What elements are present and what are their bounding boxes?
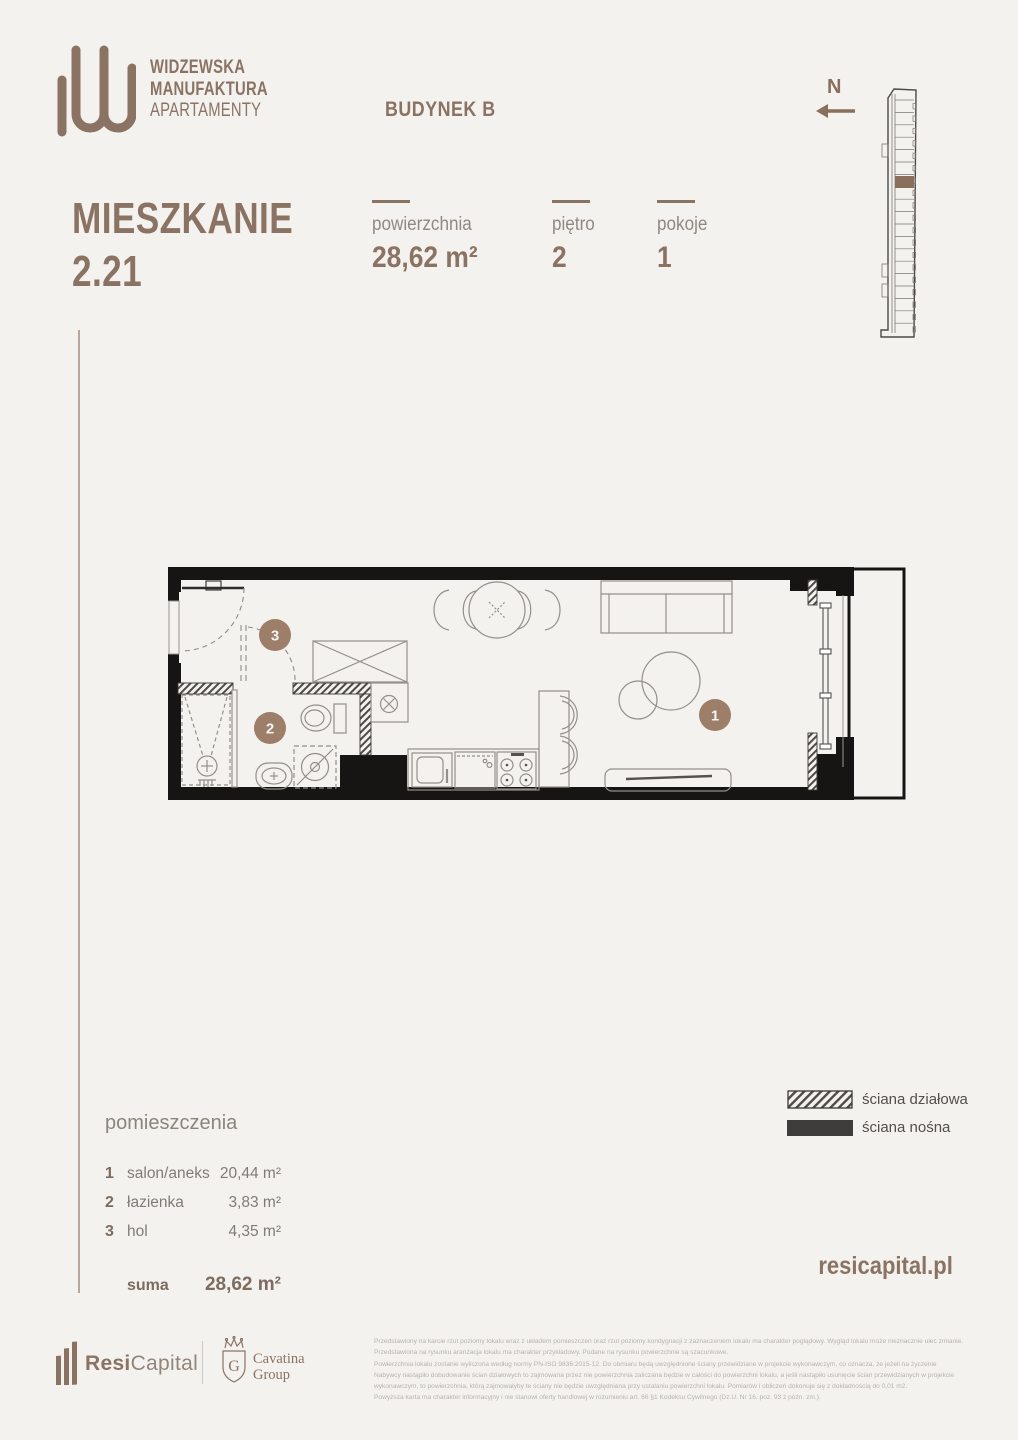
- room-row: 1 salon/aneks 20,44 m²: [105, 1165, 281, 1183]
- disclaimer-line: Przedstawiona na rysunku aranżacja lokal…: [374, 1347, 990, 1358]
- dining-set: [434, 582, 560, 638]
- logo-line-1: WIDZEWSKA: [150, 57, 268, 79]
- stat-rooms-value: 1: [657, 241, 672, 275]
- stat-floor-value: 2: [552, 241, 567, 275]
- marker-2-label: 2: [266, 721, 274, 738]
- entry-door-opening: [169, 601, 179, 654]
- apartment-card: { "page": { "background": "#f4f2ef", "ac…: [0, 0, 1018, 1440]
- washbasin: [256, 763, 292, 789]
- website-link[interactable]: resicapital.pl: [818, 1252, 953, 1281]
- room-area: 3,83 m²: [228, 1194, 281, 1212]
- room-area: 4,35 m²: [228, 1223, 281, 1241]
- legend-label-bearing-wall: ściana nośna: [862, 1119, 950, 1136]
- keyplan-highlighted-unit: [895, 176, 914, 188]
- compass: N: [814, 76, 858, 128]
- disclaimer-line: Powierzchnia lokalu zostanie wyliczona w…: [374, 1359, 990, 1370]
- resicapital-logo-text: ResiCapital: [85, 1352, 198, 1376]
- round-table-small: [619, 681, 657, 719]
- brand-logo-text: WIDZEWSKA MANUFAKTURA APARTAMENTY: [150, 57, 301, 122]
- stat-rooms: pokoje 1: [657, 200, 807, 275]
- room-name: łazienka: [127, 1194, 228, 1212]
- window: [820, 603, 831, 749]
- cavatina-monogram: G: [228, 1358, 240, 1375]
- logo-line-3: APARTAMENTY: [150, 100, 268, 122]
- floorplan-drawing: 1 2 3: [168, 563, 908, 803]
- stat-floor-label: piętro: [552, 214, 595, 236]
- legend-swatch-bearing-wall: [787, 1120, 853, 1136]
- room-row: 2 łazienka 3,83 m²: [105, 1194, 281, 1212]
- marker-1-label: 1: [711, 708, 719, 725]
- compass-n-label: N: [814, 76, 858, 99]
- marker-3-label: 3: [271, 628, 279, 645]
- title-line-1: MIESZKANIE: [72, 192, 293, 245]
- vent-box: [371, 683, 408, 722]
- cavatina-logo-text: Cavatina Group: [253, 1351, 305, 1383]
- disclaimer-line: wykonawczym, to powierzchnia, którą zajm…: [374, 1381, 990, 1392]
- entry-door: [181, 581, 244, 651]
- rooms-total-row: suma 28,62 m²: [105, 1274, 281, 1296]
- building-label: BUDYNEK B: [385, 98, 515, 122]
- legend-label-partition-wall: ściana działowa: [862, 1091, 968, 1108]
- stat-rooms-label: pokoje: [657, 214, 707, 236]
- stat-rule: [372, 200, 410, 203]
- legend-swatch-partition-wall: [787, 1090, 853, 1109]
- disclaimer-line: Powyższa karta ma charakter informacyjny…: [374, 1392, 990, 1403]
- footer-divider: [202, 1341, 203, 1384]
- disclaimer-line: Nabywcy nastąpiło dobudowanie ścian dzia…: [374, 1370, 990, 1381]
- page-title: MIESZKANIE 2.21: [72, 192, 348, 298]
- dishwasher: [455, 752, 495, 788]
- building-keyplan: [872, 86, 924, 342]
- furniture: [182, 581, 732, 791]
- total-label: suma: [127, 1277, 205, 1295]
- resicapital-logo-icon: [56, 1340, 82, 1385]
- brand-bold: Resi: [85, 1352, 131, 1375]
- stat-area: powierzchnia 28,62 m²: [372, 200, 522, 275]
- room-row: 3 hol 4,35 m²: [105, 1223, 281, 1241]
- washing-machine: [294, 746, 336, 788]
- room-number: 3: [105, 1223, 127, 1241]
- stat-area-label: powierzchnia: [372, 214, 472, 236]
- room-area: 20,44 m²: [220, 1165, 281, 1183]
- kitchen-counter: [408, 749, 539, 790]
- disclaimer-text: Przedstawiony na karcie rzut poziomy lok…: [374, 1336, 990, 1404]
- brand-regular: Capital: [131, 1352, 198, 1375]
- disclaimer-line: Przedstawiony na karcie rzut poziomy lok…: [374, 1336, 990, 1347]
- total-value: 28,62 m²: [205, 1274, 281, 1296]
- room-name: hol: [127, 1223, 228, 1241]
- room-number: 2: [105, 1194, 127, 1212]
- stove: [497, 752, 536, 789]
- cavatina-logo-icon: G: [215, 1336, 251, 1386]
- vertical-rule: [78, 330, 80, 1293]
- rooms-list: pomieszczenia 1 salon/aneks 20,44 m² 2 ł…: [105, 1112, 281, 1296]
- toilet: [301, 704, 346, 733]
- cavatina-line-2: Group: [253, 1367, 305, 1383]
- wardrobe: [313, 641, 407, 682]
- stat-rule: [657, 200, 695, 203]
- shower: [182, 695, 230, 787]
- stat-rule: [552, 200, 590, 203]
- room-name: salon/aneks: [127, 1165, 220, 1183]
- rooms-header: pomieszczenia: [105, 1112, 281, 1135]
- round-table-large: [642, 652, 700, 710]
- north-arrow-icon: [814, 99, 858, 123]
- cavatina-line-1: Cavatina: [253, 1351, 305, 1367]
- room-number: 1: [105, 1165, 127, 1183]
- title-line-2: 2.21: [72, 245, 293, 298]
- shower-partition: [232, 690, 237, 787]
- stat-area-value: 28,62 m²: [372, 241, 478, 275]
- load-bearing-walls: [168, 567, 854, 800]
- logo-line-2: MANUFAKTURA: [150, 79, 268, 101]
- keyplan-outline: [881, 89, 916, 337]
- sofa: [601, 581, 732, 633]
- brand-logo-mark-icon: [52, 42, 136, 140]
- balcony: [849, 569, 904, 798]
